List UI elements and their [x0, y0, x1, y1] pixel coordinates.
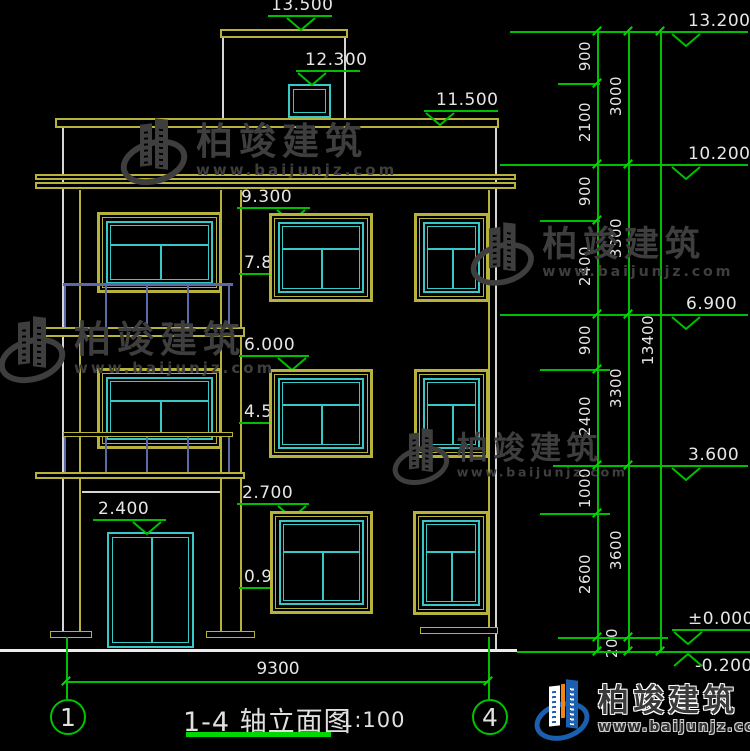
watermark-icon — [470, 222, 531, 285]
dim-label: 3600 — [607, 510, 625, 590]
elevation-value: 2.700 — [242, 483, 293, 503]
elevation-value: 11.500 — [436, 90, 498, 110]
dim-label: 3300 — [607, 348, 625, 428]
elevation-marker: 6.900 — [672, 314, 748, 316]
window-mullion — [452, 248, 454, 288]
window — [97, 212, 222, 293]
wall-right-outer — [495, 128, 497, 651]
dim-level-line — [500, 314, 672, 316]
dim-level-line — [540, 369, 610, 371]
wall-left-parapet — [62, 128, 64, 190]
elevation-value: 6.900 — [686, 294, 737, 314]
window-mullion — [322, 551, 324, 600]
watermark-brand: 柏竣建筑 — [196, 123, 397, 162]
brand-name: 柏竣建筑 — [598, 686, 750, 717]
elevation-marker: 9.300 — [237, 207, 310, 209]
dim-label: 2100 — [576, 82, 594, 162]
dim-level-line — [510, 31, 672, 33]
bulkhead-window-inner — [293, 89, 326, 113]
floor-slab-3600 — [35, 472, 245, 479]
overall-dim-line — [66, 681, 489, 683]
dim-line-middle — [628, 31, 630, 652]
logo-tower-icon — [566, 679, 578, 728]
watermark-tower-icon — [409, 432, 419, 469]
watermark: 柏竣建筑www.baijunjz.com — [392, 428, 628, 484]
footing-mid — [206, 631, 255, 638]
watermark-brand: 柏竣建筑 — [74, 321, 275, 360]
logo-accent-icon — [561, 684, 565, 718]
elevation-triangle-icon — [670, 33, 702, 47]
elevation-marker: 3.600 — [672, 465, 748, 467]
elevation-triangle-icon — [670, 316, 702, 330]
elevation-value: 9.300 — [241, 187, 292, 207]
watermark-tower-icon — [422, 428, 433, 472]
column-left-inner — [79, 190, 81, 632]
elevation-marker: 2.700 — [237, 503, 309, 505]
footing-beam-right — [420, 627, 498, 634]
watermark-tower-icon — [33, 316, 46, 368]
column-mid-right — [240, 190, 242, 632]
watermark-url: www.baijunjz.com — [457, 465, 628, 480]
elevation-triangle-icon — [131, 521, 163, 535]
dim-level-line — [500, 164, 672, 166]
ground-line — [0, 649, 517, 652]
watermark-url: www.baijunjz.com — [542, 263, 733, 280]
window-mullion — [160, 400, 162, 435]
dim-level-line — [517, 651, 750, 653]
balcony-soffit-line — [82, 491, 220, 493]
window — [269, 369, 373, 458]
watermark-url: www.baijunjz.com — [74, 359, 275, 377]
elevation-marker: 10.200 — [672, 164, 748, 166]
elevation-triangle-icon — [672, 631, 704, 645]
bulkhead-wall-left — [222, 38, 224, 118]
watermark-brand: 柏竣建筑 — [542, 226, 733, 263]
axis-line-4 — [488, 637, 490, 699]
elevation-value: 2.400 — [98, 499, 149, 519]
elevation-value: 10.200 — [688, 144, 750, 164]
window — [270, 511, 373, 614]
axis-bubble-4: 4 — [472, 699, 508, 735]
watermark-tower-icon — [503, 222, 515, 271]
elevation-value: 12.300 — [305, 50, 367, 70]
window-mullion — [321, 248, 323, 288]
watermark-swoosh-icon — [115, 131, 192, 192]
dim-label: 2600 — [576, 534, 594, 614]
balcony-post — [105, 437, 107, 472]
watermark-icon — [120, 118, 184, 184]
elevation-marker: ±0.000 — [672, 629, 750, 631]
elevation-value: 3.600 — [688, 445, 739, 465]
watermark: 柏竣建筑www.baijunjz.com — [470, 222, 733, 285]
balcony-top-rail — [63, 283, 233, 286]
bulkhead-window — [288, 84, 331, 118]
window — [413, 511, 489, 615]
window-mullion — [160, 244, 162, 279]
elevation-triangle-icon — [670, 467, 702, 481]
elevation-marker: 12.300 — [296, 70, 360, 72]
axis-number: 1 — [60, 703, 76, 732]
elevation-triangle-icon — [672, 653, 704, 667]
elevation-marker: 2.400 — [93, 519, 166, 521]
wall-left-main — [62, 190, 64, 632]
balcony-post — [146, 437, 148, 472]
window-mullion — [451, 551, 453, 601]
watermark-tower-icon — [18, 321, 30, 364]
window — [269, 213, 373, 302]
watermark: 柏竣建筑www.baijunjz.com — [120, 118, 397, 184]
elevation-marker: 11.500 — [424, 110, 498, 112]
watermark-tower-icon — [140, 123, 152, 166]
elevation-triangle-icon — [285, 17, 317, 31]
watermark-icon — [0, 316, 62, 382]
elevation-marker: 13.500 — [268, 15, 332, 17]
title-underline — [186, 732, 331, 737]
axis-number: 4 — [482, 703, 498, 732]
elevation-value: ±0.000 — [688, 609, 750, 629]
dim-label: 3000 — [607, 56, 625, 136]
balcony-post — [64, 437, 66, 472]
watermark-tower-icon — [155, 118, 168, 170]
entry-door-centerline — [151, 537, 153, 643]
balcony-top-rail — [63, 432, 233, 437]
entry-door — [107, 532, 194, 648]
elevation-drawing: 13.500 12.300 11.500 9.300 7.870 7.800 6… — [0, 0, 750, 751]
axis-bubble-1: 1 — [50, 699, 86, 735]
watermark-brand: 柏竣建筑 — [457, 432, 628, 465]
elevation-value: 13.200 — [688, 11, 750, 31]
bulkhead-roof-slab — [220, 29, 348, 38]
drawing-scale: 1:100 — [340, 708, 406, 732]
dim-label: 900 — [576, 151, 594, 231]
overall-width-dim: 9300 — [248, 659, 308, 679]
dim-label: 13400 — [639, 300, 657, 380]
elevation-value: 13.500 — [271, 0, 333, 15]
watermark-icon — [392, 428, 446, 484]
axis-line-1 — [66, 637, 68, 699]
elevation-marker: 13.200 — [672, 31, 748, 33]
dim-label: 900 — [576, 300, 594, 380]
dim-line-inner — [597, 31, 599, 652]
dim-label: 200 — [603, 603, 621, 683]
watermark: 柏竣建筑www.baijunjz.com — [0, 316, 275, 382]
balcony-post — [228, 437, 230, 472]
dim-line-total — [660, 31, 662, 652]
elevation-triangle-icon — [424, 112, 456, 126]
brand-logo-icon — [536, 680, 588, 740]
dim-level-line — [558, 637, 668, 639]
watermark-url: www.baijunjz.com — [196, 161, 397, 179]
elevation-triangle-icon — [670, 166, 702, 180]
footing-left — [50, 631, 92, 638]
brand-logo: 柏竣建筑 www.baijunjz.com — [536, 680, 750, 740]
window-mullion — [321, 404, 323, 444]
logo-tower-icon — [549, 685, 560, 726]
watermark-tower-icon — [489, 227, 500, 268]
dim-level-line — [540, 513, 610, 515]
balcony-post — [187, 437, 189, 472]
brand-url: www.baijunjz.com — [598, 719, 750, 735]
elevation-triangle-icon — [296, 72, 328, 86]
